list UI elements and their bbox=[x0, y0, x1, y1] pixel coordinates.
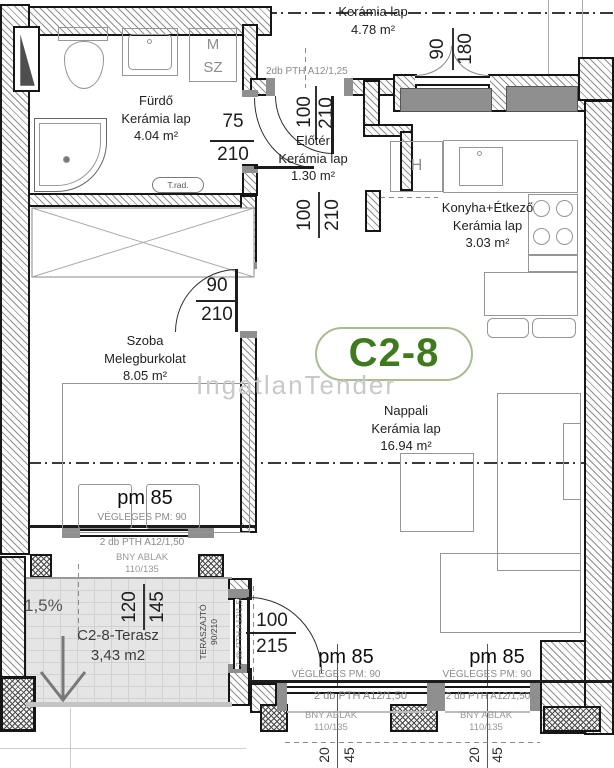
nappali-sill1-final: VÉGLEGES PM: 90 bbox=[283, 669, 389, 680]
burner-2 bbox=[556, 200, 573, 217]
konyha-window-glazing bbox=[415, 76, 490, 86]
chair-2 bbox=[532, 318, 576, 338]
corridor-area: 4.78 m² bbox=[318, 21, 428, 39]
szoba-lintel: 2 db PTH A12/1,50 bbox=[86, 537, 198, 548]
nappali-window1-type: BNY ABLAK bbox=[299, 710, 363, 722]
parapet-b-h: 45 bbox=[490, 740, 506, 768]
kitchen-floor-divider bbox=[380, 197, 438, 198]
terrace-door-size: 90/210 bbox=[209, 586, 220, 678]
eloter-area: 1.30 m² bbox=[252, 167, 374, 185]
sill-konyha-window-a bbox=[400, 88, 492, 112]
dryer-label: SZ bbox=[189, 57, 237, 80]
sofa-arm bbox=[563, 423, 581, 500]
parapet-a-w: 20 bbox=[317, 740, 333, 768]
toilet-tank bbox=[58, 27, 108, 41]
washer-dryer-labels: M SZ bbox=[189, 34, 237, 79]
nappali-label: Nappali Kerámia lap 16.94 m² bbox=[345, 402, 467, 455]
wallface-nappali-bottom bbox=[250, 680, 614, 683]
terrace-fraction-line bbox=[143, 584, 145, 630]
shower-drain bbox=[63, 156, 70, 163]
insulation-szoba-window-left bbox=[30, 554, 52, 578]
slope-arrow bbox=[32, 636, 94, 710]
sofa-second bbox=[440, 553, 581, 633]
bath-sink-drain bbox=[147, 39, 152, 44]
radiator-label: T.rad. bbox=[153, 178, 203, 192]
coffee-table bbox=[400, 453, 474, 532]
kitchen-lower-unit bbox=[528, 255, 578, 272]
szoba-door-height: 210 bbox=[195, 305, 239, 324]
nappali-name: Nappali bbox=[345, 402, 467, 420]
lintel-entry-label: 2db PTH A12/1,25 bbox=[266, 66, 370, 77]
furdo-name: Fürdő bbox=[96, 92, 216, 110]
szoba-sill-pm: pm 85 bbox=[108, 488, 182, 508]
szoba-door-fraction-line bbox=[196, 300, 238, 302]
eloter-pass-height: 210 bbox=[323, 190, 341, 240]
corridor-floor: Kerámia lap bbox=[318, 3, 428, 21]
eloter-label: Előtér Kerámia lap 1.30 m² bbox=[252, 132, 374, 185]
nappali-window2-size: 110/135 bbox=[454, 722, 518, 734]
unit-label: C2-8 bbox=[349, 331, 440, 375]
nappali-window1-spec: BNY ABLAK 110/135 bbox=[299, 710, 363, 734]
burner-4 bbox=[556, 228, 573, 245]
terrace-slope: 1,5% bbox=[24, 596, 80, 616]
konyha-window-fraction-line bbox=[452, 28, 454, 70]
nappali-sill2-final: VÉGLEGES PM: 90 bbox=[434, 669, 540, 680]
nappali-lintel2: 2 db PTH A12/1,50 bbox=[437, 691, 539, 702]
jamb-bath-top bbox=[242, 90, 258, 97]
wall-topright-block bbox=[578, 57, 614, 101]
kitchen-sink-drain bbox=[477, 151, 482, 156]
bath-door-fraction-line bbox=[210, 140, 254, 142]
radiator-box: T.rad. bbox=[152, 177, 204, 193]
plot-line-v bbox=[70, 708, 71, 768]
jamb-entry-left bbox=[266, 78, 275, 96]
watermark: IngatlanTender bbox=[196, 370, 396, 401]
dining-table bbox=[484, 272, 578, 316]
bath-door-width: 75 bbox=[213, 112, 253, 131]
wall-eloter-bottom-right bbox=[365, 190, 381, 232]
terrace-top-line bbox=[26, 577, 232, 579]
szoba-sill-final: VÉGLEGES PM: 90 bbox=[84, 512, 200, 523]
szoba-window-spec: BNY ABLAK 110/135 bbox=[100, 552, 184, 576]
terrace-height: 145 bbox=[148, 585, 166, 629]
szoba-area: 8.05 m² bbox=[84, 367, 206, 385]
furdo-floor: Kerámia lap bbox=[96, 110, 216, 128]
konyha-label: Konyha+Étkező Kerámia lap 3.03 m² bbox=[420, 199, 555, 252]
entry-door-height: 210 bbox=[317, 88, 335, 138]
shower-inner bbox=[39, 123, 101, 186]
terrace-door-spec: TERASZAJTÓ 90/210 bbox=[198, 586, 224, 678]
terrace-width: 120 bbox=[120, 585, 138, 629]
corridor-label: Kerámia lap 4.78 m² bbox=[318, 3, 428, 38]
furdo-area: 4.04 m² bbox=[96, 127, 216, 145]
konyha-floor: Kerámia lap bbox=[420, 217, 555, 235]
nappali-window2-spec: BNY ABLAK 110/135 bbox=[454, 710, 518, 734]
jamb-szoba-bottom bbox=[240, 331, 257, 338]
entry-door-width: 100 bbox=[295, 87, 313, 137]
eloter-floor: Kerámia lap bbox=[252, 150, 374, 168]
toilet-bowl bbox=[64, 41, 104, 89]
nappali-area: 16.94 m² bbox=[345, 437, 467, 455]
konyha-name: Konyha+Étkező bbox=[420, 199, 555, 217]
plot-line-h bbox=[0, 748, 246, 749]
parapet-a-h: 45 bbox=[342, 740, 358, 768]
insulation-window2-right bbox=[543, 706, 601, 732]
szoba-window-type: BNY ABLAK bbox=[100, 552, 184, 564]
terrace-door-leaf bbox=[247, 597, 250, 673]
nappali-sill2-pm: pm 85 bbox=[465, 647, 529, 667]
konyha-window-width: 90 bbox=[428, 29, 446, 69]
shaft-triangle bbox=[18, 32, 37, 88]
washer-label: M bbox=[189, 34, 237, 57]
chair-1 bbox=[487, 318, 529, 338]
terrace-lintel: 2 db PTH A12/1,50 bbox=[235, 585, 247, 677]
nappali-lintel1: 2 db PTH A12/1,50 bbox=[282, 690, 439, 702]
nappali-sill1-pm: pm 85 bbox=[314, 647, 378, 667]
fridge-label: H bbox=[390, 157, 443, 175]
nappali-floor: Kerámia lap bbox=[345, 420, 467, 438]
szoba-door-width: 90 bbox=[197, 276, 237, 295]
nappali-window2-type: BNY ABLAK bbox=[454, 710, 518, 722]
wall-terrace-left bbox=[0, 556, 26, 678]
jamb-entry-right bbox=[344, 78, 353, 96]
parapet-b-w: 20 bbox=[467, 740, 483, 768]
eloter-name: Előtér bbox=[252, 132, 374, 150]
wardrobe bbox=[31, 207, 255, 278]
wall-szoba-top bbox=[28, 193, 256, 207]
bath-door-height: 210 bbox=[211, 145, 255, 164]
sill-konyha-window-b bbox=[506, 86, 578, 112]
shaft-symbol bbox=[13, 26, 40, 92]
upper-floor-line-a bbox=[548, 0, 549, 74]
terrace-door-width: 100 bbox=[250, 611, 294, 630]
terrace-door-height: 215 bbox=[248, 637, 296, 656]
nappali-window1-size: 110/135 bbox=[299, 722, 363, 734]
terrace-door-label: TERASZAJTÓ bbox=[198, 586, 209, 678]
floor-plan: M SZ T.rad. H Kerámia lap bbox=[0, 0, 614, 768]
terrace-door-fraction-line bbox=[246, 632, 296, 634]
insulation-szoba-window-right bbox=[198, 554, 224, 578]
szoba-name: Szoba bbox=[84, 332, 206, 350]
szoba-floor: Melegburkolat bbox=[84, 350, 206, 368]
eloter-pass-fraction-line bbox=[318, 192, 320, 238]
konyha-area: 3.03 m² bbox=[420, 234, 555, 252]
furdo-label: Fürdő Kerámia lap 4.04 m² bbox=[96, 92, 216, 145]
szoba-window-size: 110/135 bbox=[100, 564, 184, 576]
konyha-window-height: 180 bbox=[456, 29, 474, 69]
eloter-pass-width: 100 bbox=[295, 190, 313, 240]
terrace-door-arc bbox=[249, 597, 322, 673]
szoba-label: Szoba Melegburkolat 8.05 m² bbox=[84, 332, 206, 385]
wall-right bbox=[584, 100, 614, 735]
